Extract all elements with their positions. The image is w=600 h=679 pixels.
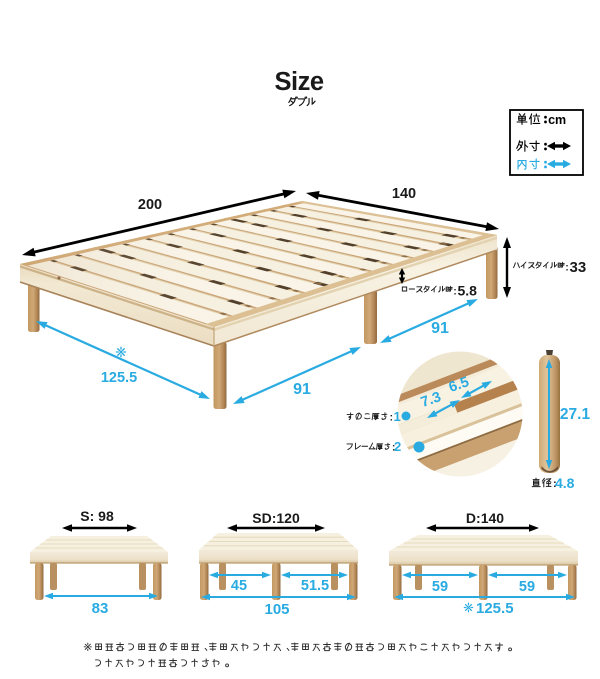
svg-text:125.5: 125.5 (476, 600, 514, 617)
svg-text::: : (390, 413, 393, 424)
svg-text:4.8: 4.8 (555, 475, 575, 491)
svg-text::: : (565, 263, 568, 274)
svg-text:S: 98: S: 98 (80, 508, 114, 524)
svg-text:91: 91 (293, 381, 311, 398)
svg-text:2: 2 (394, 439, 401, 454)
svg-text:83: 83 (92, 600, 109, 617)
svg-text:59: 59 (432, 579, 448, 595)
svg-text::: : (453, 287, 456, 298)
svg-text:1: 1 (394, 409, 401, 424)
svg-text:5.8: 5.8 (458, 283, 478, 299)
svg-text:200: 200 (138, 197, 162, 213)
svg-text:45: 45 (231, 578, 247, 594)
svg-text:Size: Size (274, 68, 323, 96)
svg-text:cm: cm (548, 113, 566, 127)
svg-text:140: 140 (392, 186, 416, 202)
svg-text:105: 105 (264, 601, 289, 618)
svg-text:SD:120: SD:120 (252, 510, 300, 526)
svg-text:59: 59 (519, 579, 535, 595)
svg-text:125.5: 125.5 (101, 370, 137, 386)
svg-text:91: 91 (431, 320, 449, 337)
svg-text:51.5: 51.5 (301, 578, 329, 594)
svg-text:D:140: D:140 (466, 510, 504, 526)
svg-text:27.1: 27.1 (560, 406, 591, 423)
svg-text:33: 33 (570, 259, 587, 276)
